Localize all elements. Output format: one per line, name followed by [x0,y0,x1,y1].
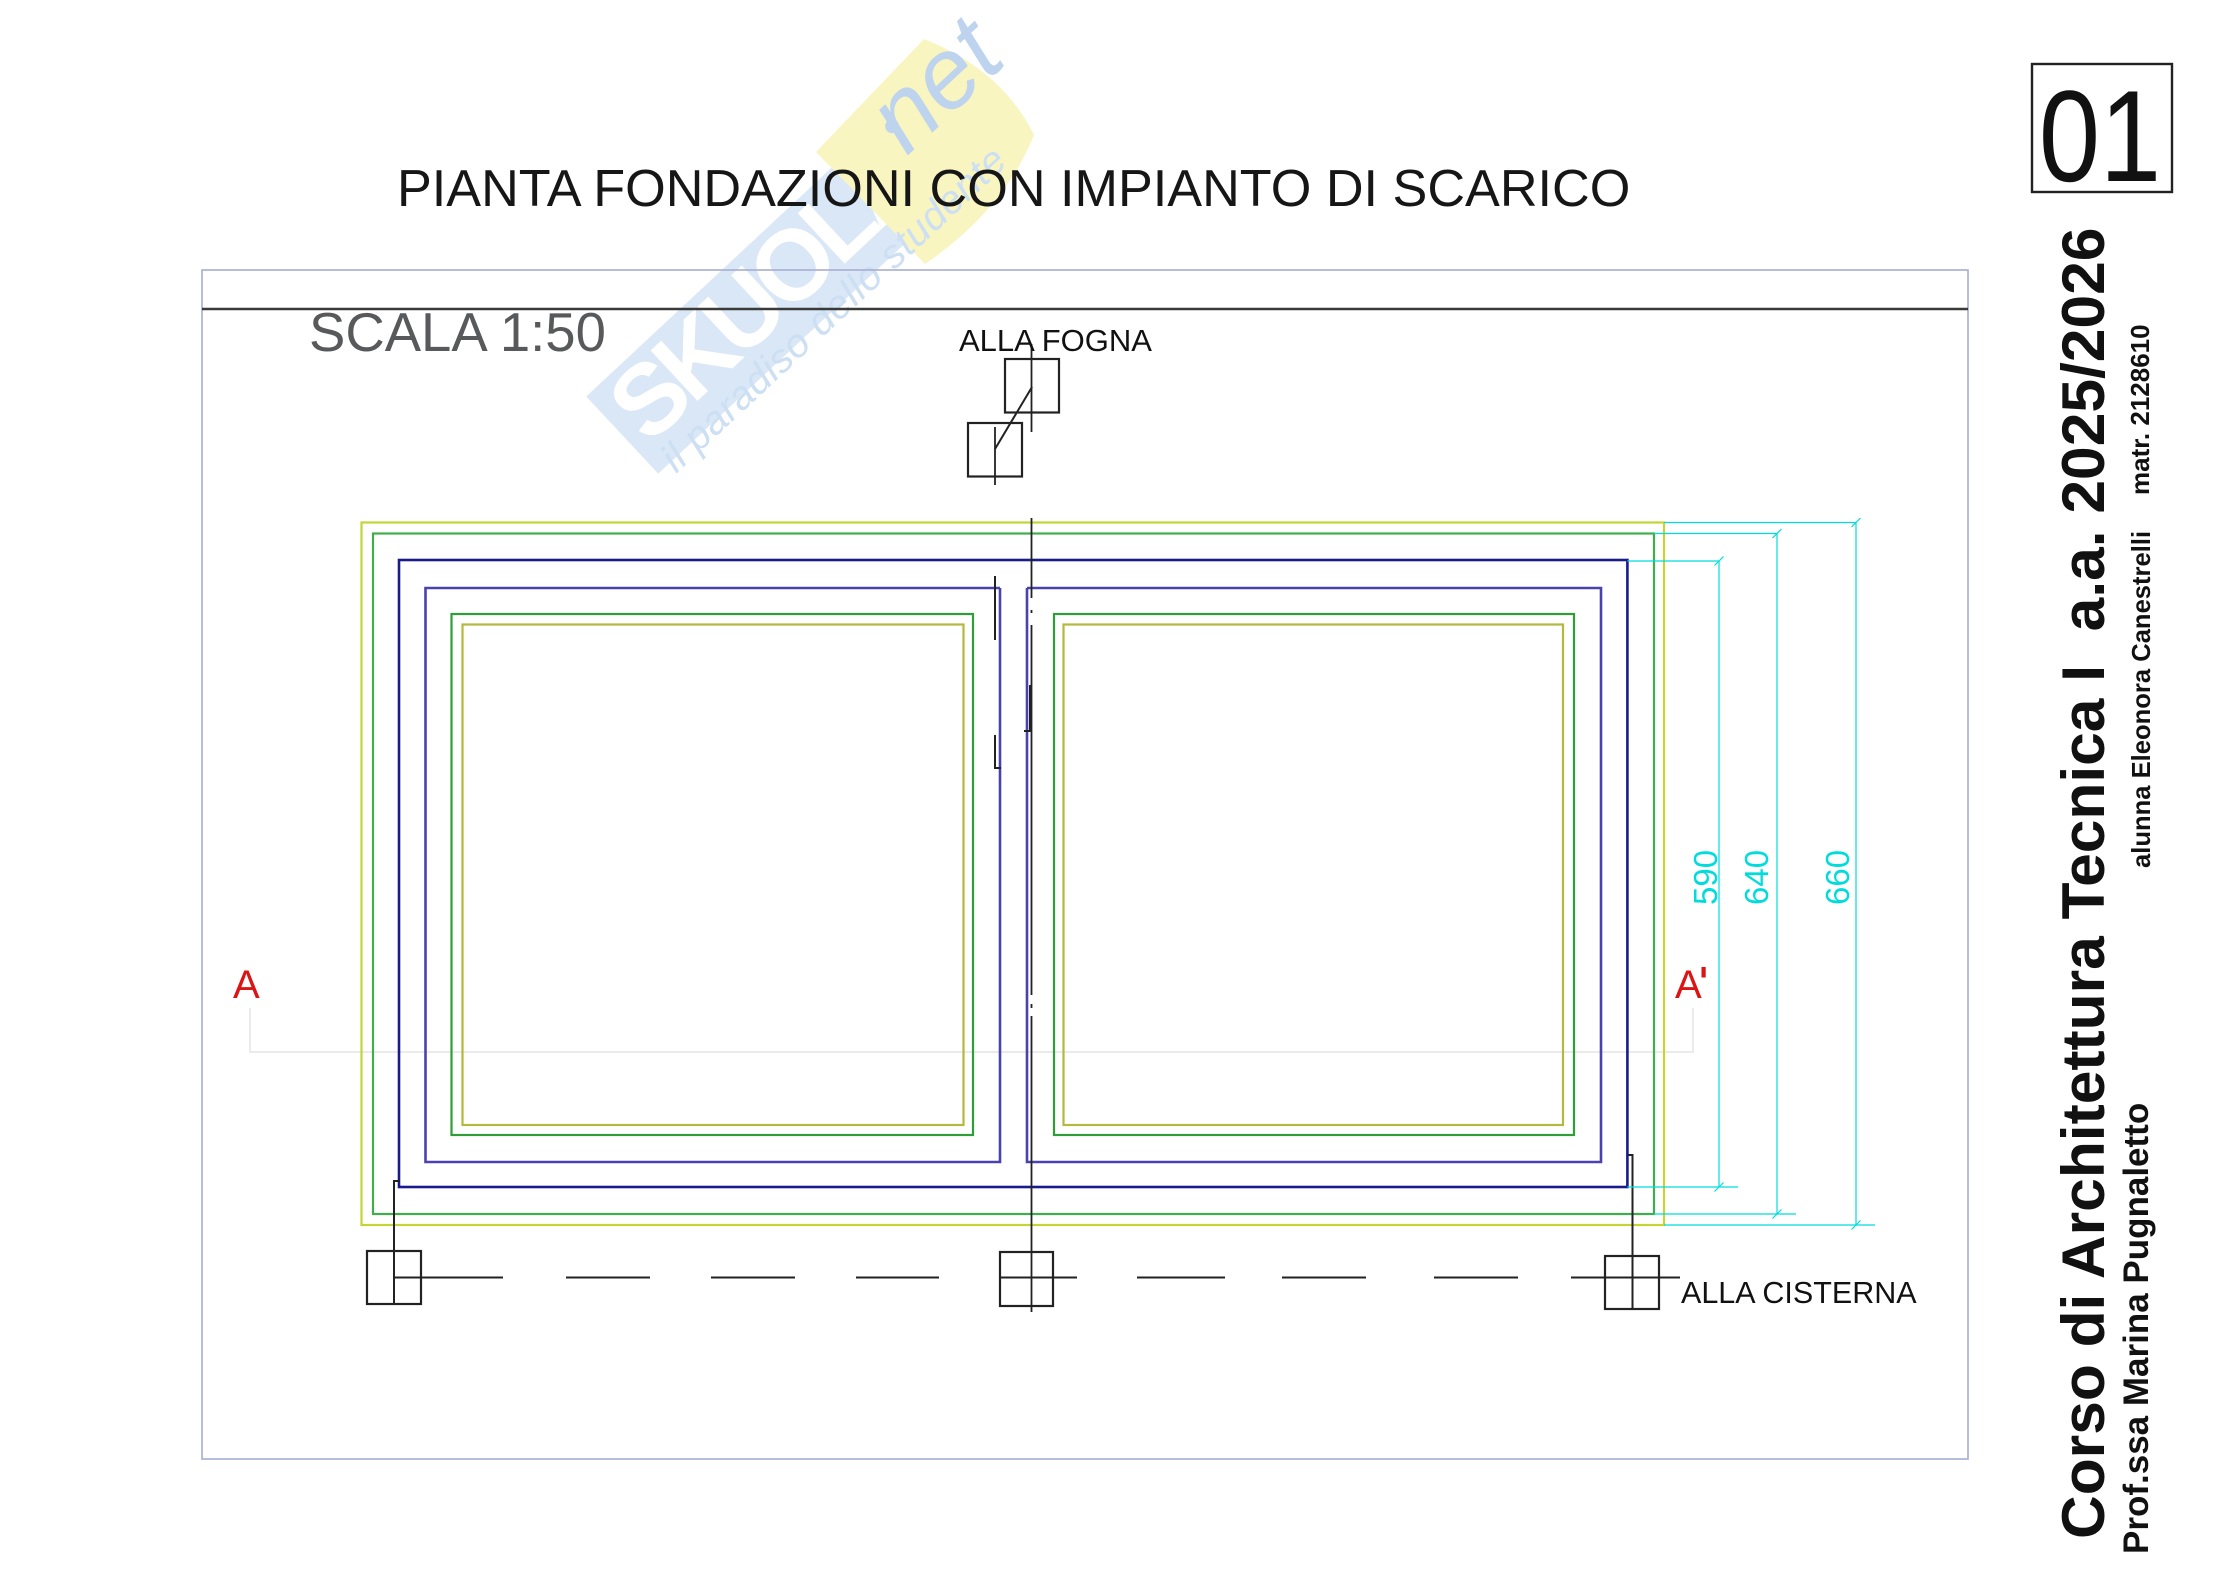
svg-text:640: 640 [1738,850,1775,905]
svg-text:A: A [233,963,260,1007]
svg-text:590: 590 [1687,850,1724,905]
svg-text:ALLA CISTERNA: ALLA CISTERNA [1681,1276,1917,1310]
svg-text:01: 01 [2039,63,2161,209]
svg-text:PIANTA FONDAZIONI CON IMPIANTO: PIANTA FONDAZIONI CON IMPIANTO DI SCARIC… [397,160,1630,218]
svg-text:A: A [1675,963,1702,1007]
svg-text:alunna Eleonora Canestrelli: alunna Eleonora Canestrelli [2128,531,2156,868]
svg-text:ALLA FOGNA: ALLA FOGNA [959,323,1152,358]
svg-text:matr. 2128610: matr. 2128610 [2125,324,2155,495]
svg-text:660: 660 [1819,850,1856,905]
svg-text:Corso di Architettura Tecnica: Corso di Architettura Tecnica I a.a. 202… [2049,228,2117,1539]
svg-text:SCALA 1:50: SCALA 1:50 [309,302,606,363]
svg-text:Prof.ssa Marina Pugnaletto: Prof.ssa Marina Pugnaletto [2117,1103,2156,1554]
